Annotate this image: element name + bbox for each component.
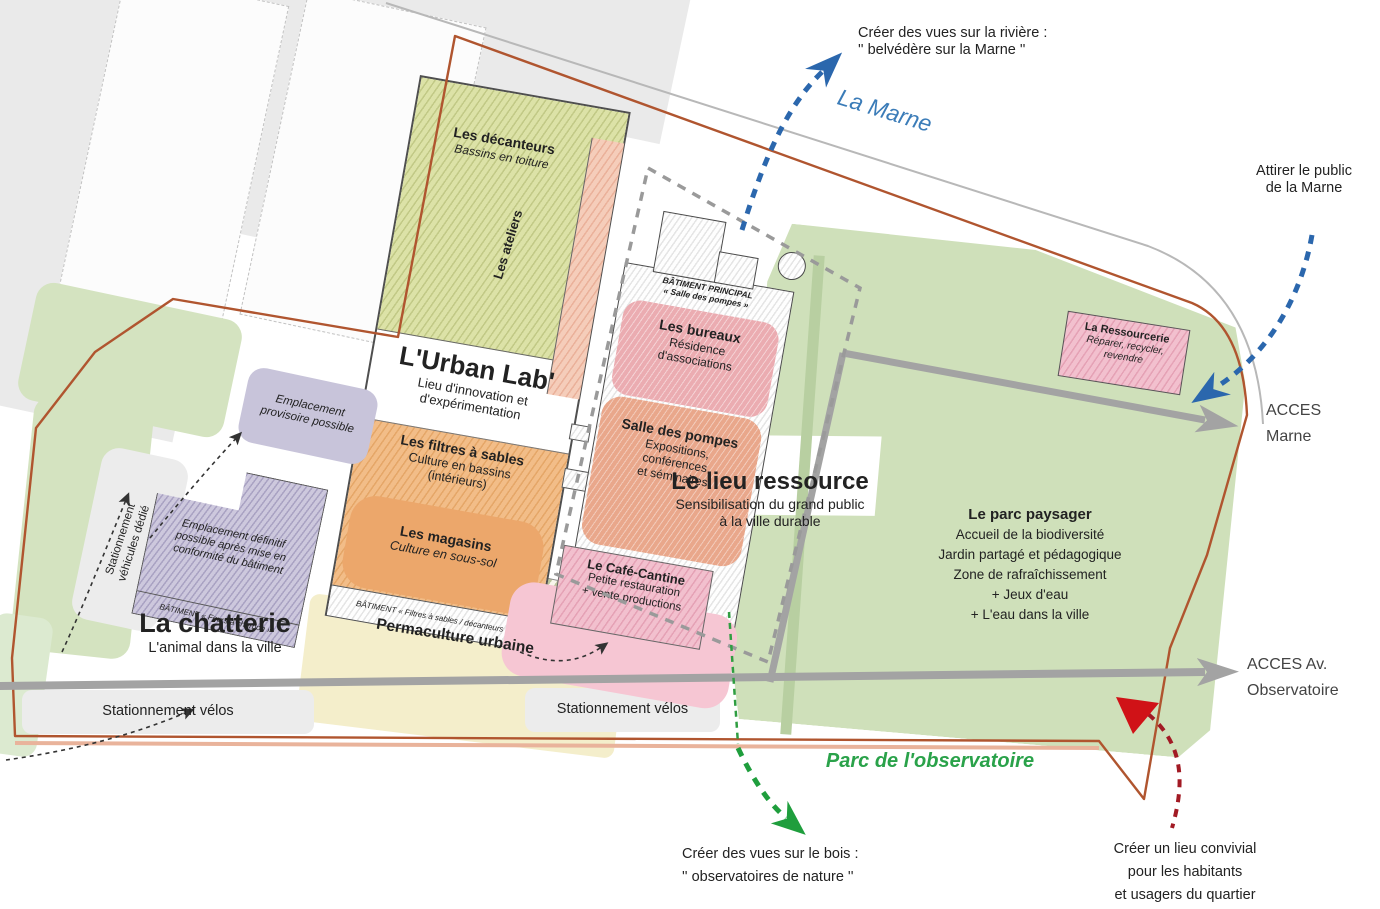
arrow-belvedere <box>742 72 822 230</box>
cafe-cantine-label: Le Café-Cantine Petite restauration + ve… <box>556 552 711 620</box>
annotation-riviere: Créer des vues sur la rivière : '' belvé… <box>858 25 1138 59</box>
annotation-convivial: Créer un lieu convivial pour les habitan… <box>1075 838 1295 908</box>
emplacement-provisoire-box: Emplacement provisoire possible <box>236 365 381 467</box>
magasins-label: Les magasins Culture en sous-sol <box>345 514 543 579</box>
green-area-bottom-left <box>0 612 54 759</box>
ressourcerie-label: La Ressourcerie Réparer, recycler, reven… <box>1062 318 1188 373</box>
acces-marne-label: ACCES Marne <box>1266 398 1376 450</box>
annotation-bois: Créer des vues sur le bois : '' observat… <box>682 843 952 889</box>
parc-observatoire-label: Parc de l'observatoire <box>780 750 1080 774</box>
chatterie-title: La chatterie L'animal dans la ville <box>95 608 335 657</box>
acces-observatoire-label: ACCES Av. Observatoire <box>1247 652 1377 704</box>
lieu-ressource-title: Le lieu ressource Sensibilisation du gra… <box>615 468 925 529</box>
site-plan: Les décanteurs Bassins en toiture Les at… <box>0 0 1380 909</box>
la-marne-label: La Marne <box>834 84 985 154</box>
bureaux-label: Les bureaux Résidence d'associations <box>616 310 779 382</box>
parking-bikes-left-label: Stationnement vélos <box>22 703 314 720</box>
parking-bikes-middle-label: Stationnement vélos <box>525 701 720 718</box>
emplacement-provisoire-label: Emplacement provisoire possible <box>241 387 376 441</box>
building-connector <box>569 423 591 442</box>
main-building-jigsaw <box>714 251 759 289</box>
annotation-attirer: Attirer le public de la Marne <box>1228 163 1380 197</box>
parc-paysager-label: Le parc paysager Accueil de la biodivers… <box>880 505 1180 625</box>
emplacement-definitif-label: Emplacement définitif possible après mis… <box>146 511 315 583</box>
arrow-bois <box>738 748 786 818</box>
